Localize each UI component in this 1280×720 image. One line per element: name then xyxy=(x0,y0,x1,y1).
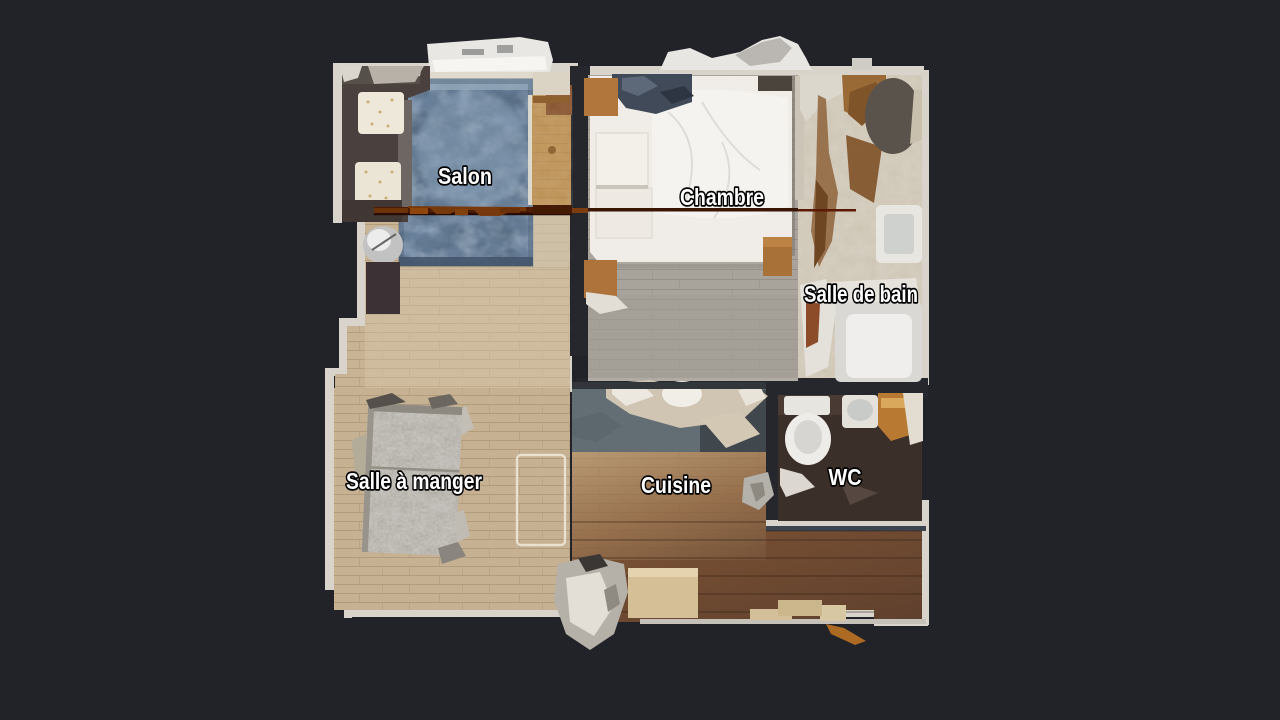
svg-text:Chambre: Chambre xyxy=(680,184,764,210)
svg-text:Cuisine: Cuisine xyxy=(641,472,711,498)
svg-text:Salon: Salon xyxy=(438,163,492,189)
svg-text:Salle à manger: Salle à manger xyxy=(346,468,482,494)
svg-text:Salle de bain: Salle de bain xyxy=(804,281,918,307)
svg-text:WC: WC xyxy=(829,464,862,490)
